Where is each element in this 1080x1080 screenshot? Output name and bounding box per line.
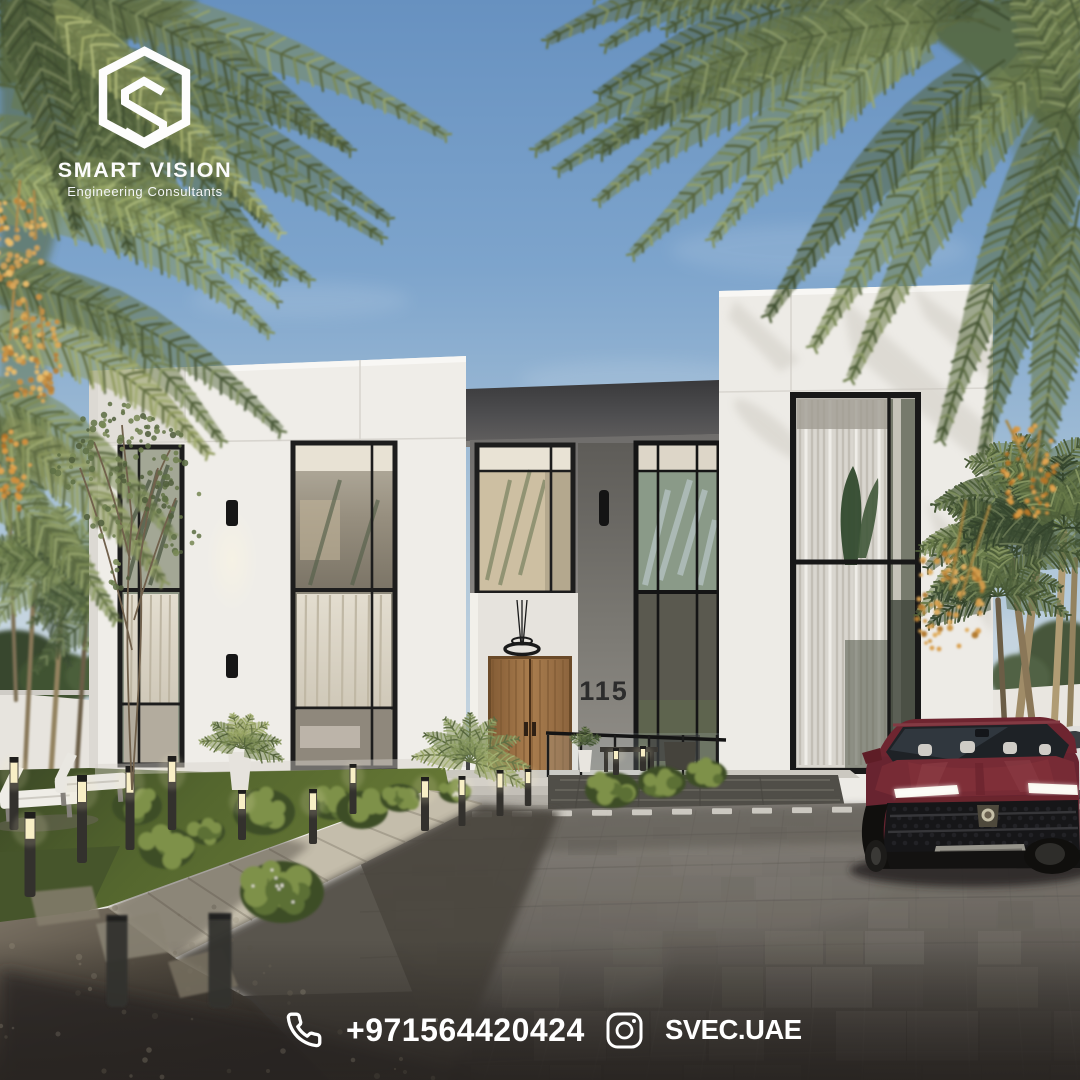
svg-text:Engineering Consultants: Engineering Consultants (67, 184, 222, 199)
svg-text:SMART VISION: SMART VISION (58, 158, 233, 182)
svg-text:+971564420424: +971564420424 (346, 1012, 585, 1048)
svg-text:115: 115 (579, 676, 629, 706)
svg-text:SVEC.UAE: SVEC.UAE (665, 1014, 802, 1045)
